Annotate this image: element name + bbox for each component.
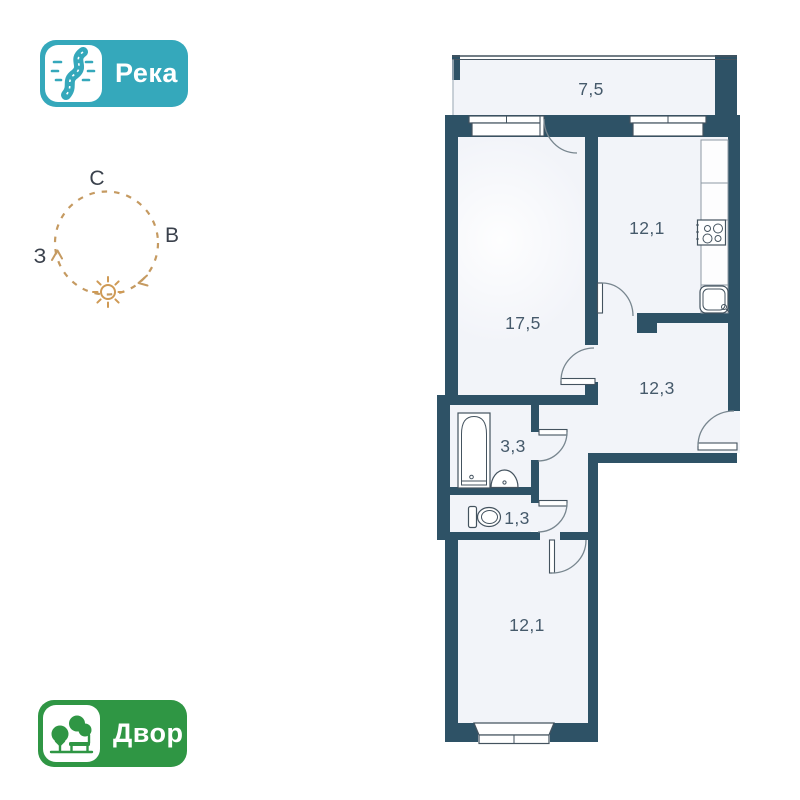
bedroom-doorway-floor (540, 532, 560, 540)
floor-glow (405, 135, 595, 345)
room-label-wc: 1,3 (504, 508, 530, 528)
bedroom-window (474, 723, 554, 744)
room-label-balcony: 7,5 (578, 79, 604, 99)
wc-doorway-floor (531, 503, 539, 531)
park-icon (43, 705, 100, 762)
room-label-bedroom: 12,1 (509, 615, 545, 635)
stove (696, 220, 726, 245)
kitchen-sink (700, 286, 729, 313)
floorplan-page: Река С В З (0, 0, 800, 800)
toilet (469, 507, 501, 528)
living-room-window (469, 116, 544, 136)
room-label-hallway: 12,3 (639, 378, 675, 398)
room-label-kitchen: 12,1 (629, 218, 665, 238)
room-label-bathroom: 3,3 (500, 436, 526, 456)
yard-badge: Двор (38, 700, 187, 767)
bathtub (458, 413, 490, 488)
floor-plan: 7,5 17,5 12,1 12,3 3,3 1,3 12,1 (0, 0, 800, 800)
kitchen-window (630, 116, 706, 136)
yard-badge-label: Двор (113, 718, 183, 749)
room-label-living: 17,5 (505, 313, 541, 333)
bathroom-doorway-floor (531, 432, 539, 460)
living-doorway-floor (585, 345, 598, 382)
